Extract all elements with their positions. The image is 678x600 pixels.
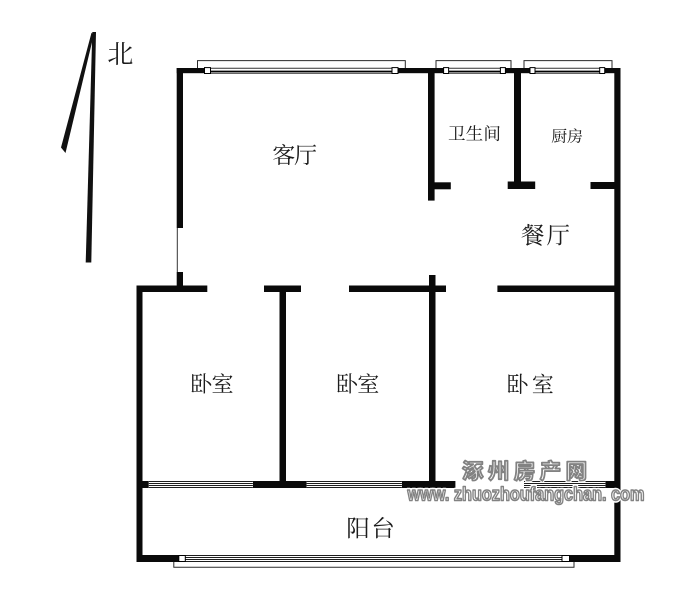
svg-text:www. zhuozhoufangchan. com: www. zhuozhoufangchan. com bbox=[407, 484, 645, 506]
